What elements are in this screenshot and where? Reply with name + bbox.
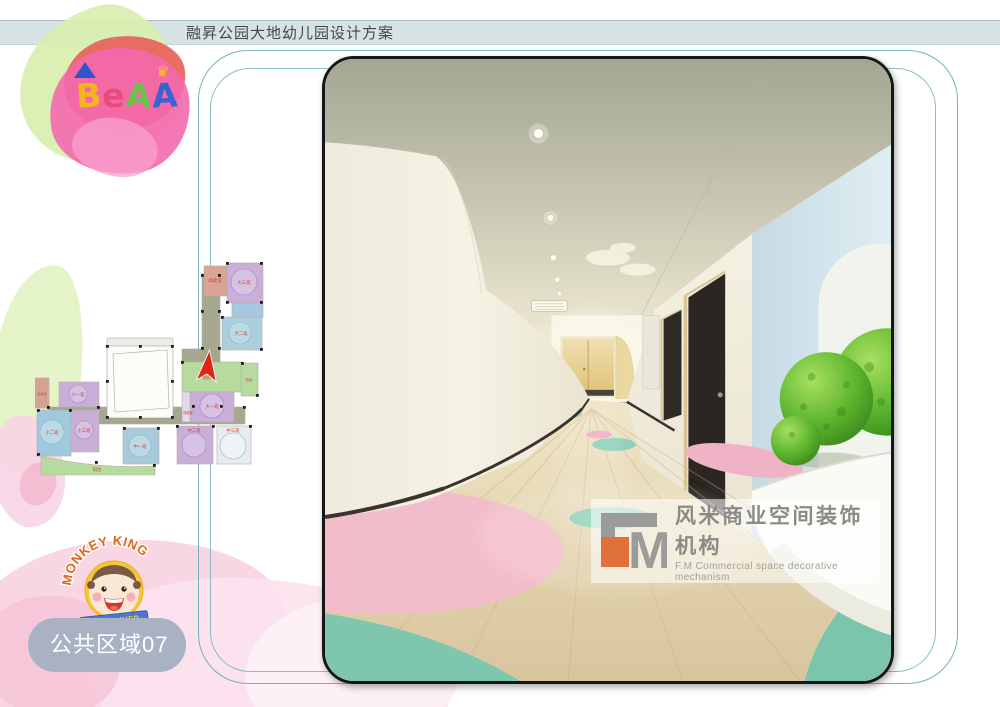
- company-watermark: M 风米商业空间装饰机构 F.M Commercial space decora…: [591, 499, 879, 583]
- logo-letter-e: e: [102, 76, 125, 115]
- svg-text:大一班: 大一班: [205, 403, 219, 410]
- svg-text:小一班: 小一班: [71, 391, 85, 398]
- svg-text:M: M: [628, 522, 667, 572]
- slide-canvas: ♛ BeAA 融昇公园大地幼儿园设计方案: [0, 0, 1000, 707]
- logo-letter-a2: A: [151, 75, 180, 115]
- svg-text:阅读室: 阅读室: [208, 277, 222, 284]
- svg-text:阳台: 阳台: [93, 466, 102, 473]
- wall-niche: [643, 315, 660, 389]
- door-handle: [718, 392, 723, 397]
- dark-door-far: [662, 309, 682, 421]
- svg-text:中一班: 中一班: [133, 443, 147, 450]
- svg-text:中三班: 中三班: [226, 427, 240, 434]
- watermark-cn-text: 风米商业空间装饰机构: [675, 500, 879, 560]
- logo-letter-b: B: [75, 75, 104, 116]
- ceiling-vent: [532, 300, 568, 311]
- svg-text:小二班: 小二班: [45, 429, 59, 436]
- svg-text:阳台: 阳台: [245, 377, 253, 382]
- brand-logo: BeAA: [76, 76, 186, 124]
- dark-door-near: [685, 272, 725, 518]
- logo-letter-a1: A: [125, 75, 154, 115]
- monkey-face: [85, 561, 143, 619]
- monkey-king-badge: MONKEY KING JIANGLIUER: [58, 528, 170, 632]
- svg-text:大三班: 大三班: [237, 279, 251, 286]
- area-label-pill: 公共区域07: [28, 618, 186, 672]
- svg-text:中二班: 中二班: [187, 427, 201, 434]
- svg-text:大二班: 大二班: [234, 330, 248, 337]
- plan-courtyard: [107, 346, 173, 418]
- svg-text:晨检室: 晨检室: [37, 391, 46, 396]
- watermark-en-text: F.M Commercial space decorative mechanis…: [675, 561, 879, 583]
- corridor-render: [325, 59, 891, 681]
- area-label-text: 公共区域07: [50, 632, 168, 657]
- render-image: M 风米商业空间装饰机构 F.M Commercial space decora…: [322, 56, 894, 684]
- svg-text:小三班: 小三班: [77, 427, 91, 434]
- fm-logo-icon: M: [601, 510, 667, 572]
- svg-text:保健室: 保健室: [183, 410, 193, 415]
- page-title: 融昇公园大地幼儿园设计方案: [186, 22, 394, 43]
- floor-plan: 阅读室 大三班 大二班 厨房 阳台 大一班 保健室 中二班 中三班 中一班 小一…: [35, 250, 268, 478]
